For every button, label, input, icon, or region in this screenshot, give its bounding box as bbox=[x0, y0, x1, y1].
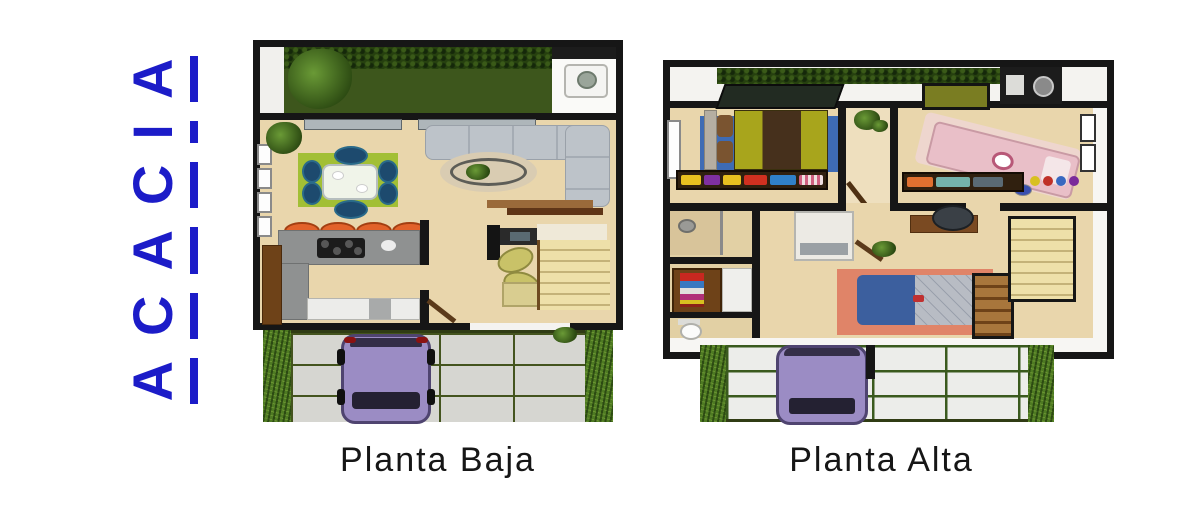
upper-floor-plan bbox=[663, 60, 1100, 422]
plate bbox=[356, 184, 368, 193]
door-opening bbox=[966, 203, 1000, 211]
towel-stack bbox=[680, 273, 704, 307]
bath-wall bbox=[670, 257, 752, 264]
bedroom-1 bbox=[670, 108, 838, 203]
bed-pattern bbox=[990, 150, 1016, 173]
interior-wall bbox=[752, 211, 760, 338]
car-rear-window bbox=[350, 338, 422, 347]
stair-landing bbox=[537, 224, 607, 240]
washer-drum bbox=[577, 71, 597, 89]
laundry-nook bbox=[552, 47, 616, 113]
laundry-counter bbox=[552, 47, 616, 59]
lawn-strip-left bbox=[263, 330, 291, 422]
brand-acacia-vertical-text: A C A C I A bbox=[125, 50, 235, 410]
sofa-corner-section bbox=[565, 125, 610, 207]
wall-frame bbox=[1080, 114, 1096, 142]
car-taillight bbox=[344, 337, 356, 343]
car-roof-view bbox=[776, 345, 868, 425]
dining-chair bbox=[302, 182, 322, 205]
plate bbox=[332, 171, 344, 180]
washing-machine bbox=[564, 64, 608, 98]
window bbox=[257, 168, 272, 189]
car-wheel bbox=[427, 349, 435, 365]
bench-seat bbox=[502, 282, 539, 307]
lawn-strip-right bbox=[1028, 345, 1054, 422]
car-wheel bbox=[337, 389, 345, 405]
toilet bbox=[680, 323, 702, 340]
driveway-pavement bbox=[726, 345, 1028, 422]
terrace-hedge bbox=[717, 68, 1000, 84]
vanity-cabinet bbox=[794, 211, 854, 261]
living-round-rug bbox=[440, 152, 537, 192]
tv-console-front bbox=[507, 208, 603, 215]
burner bbox=[321, 240, 329, 248]
lawn-strip-left bbox=[700, 345, 726, 422]
dining-chair bbox=[302, 160, 322, 183]
desk-chair bbox=[932, 205, 974, 231]
bed-cover bbox=[734, 110, 828, 170]
cabinet-front bbox=[800, 243, 848, 255]
shower-drain bbox=[678, 219, 696, 233]
car bbox=[341, 334, 431, 424]
hallway bbox=[846, 108, 890, 203]
car-taillight bbox=[416, 337, 428, 343]
sliding-glass-door bbox=[304, 119, 402, 130]
headboard bbox=[704, 110, 717, 170]
window bbox=[257, 192, 272, 213]
dining-chair bbox=[334, 200, 368, 219]
interior-wall bbox=[420, 290, 429, 323]
burner bbox=[354, 247, 362, 255]
car-windshield bbox=[352, 392, 420, 409]
car-windshield bbox=[789, 398, 855, 414]
bed-blanket bbox=[857, 275, 921, 325]
staircase bbox=[537, 240, 610, 310]
bed-sheet bbox=[915, 275, 977, 325]
dresser-item bbox=[936, 177, 970, 187]
wall-segment bbox=[866, 345, 875, 379]
tv-console-top bbox=[487, 200, 593, 208]
car-wheel bbox=[427, 389, 435, 405]
towel-cabinet bbox=[672, 268, 722, 314]
utility-closet bbox=[1000, 67, 1062, 104]
brand-letter: A bbox=[125, 227, 198, 273]
toy-shelf bbox=[676, 170, 828, 190]
car-rear-window bbox=[784, 348, 860, 356]
shower bbox=[670, 211, 723, 255]
toy bbox=[681, 175, 701, 185]
study-cabinet bbox=[487, 225, 500, 260]
kitchen-lower-cabinets bbox=[307, 298, 420, 320]
driveway bbox=[263, 330, 613, 422]
dining-chair bbox=[334, 146, 368, 165]
fridge-cabinet bbox=[262, 245, 282, 325]
toy bbox=[770, 175, 796, 185]
burner bbox=[345, 240, 353, 248]
kitchen-counter bbox=[278, 230, 420, 265]
pillow bbox=[717, 141, 733, 163]
interior-wall bbox=[838, 108, 846, 211]
toy-ball bbox=[1030, 176, 1040, 186]
corner-plant bbox=[266, 122, 302, 154]
dining-table bbox=[322, 164, 378, 200]
bath-wall bbox=[670, 312, 752, 318]
porch-bush bbox=[553, 327, 577, 343]
bedroom-3 bbox=[760, 211, 1093, 338]
ground-floor-plan bbox=[253, 40, 623, 422]
entry-door-leaf bbox=[426, 299, 456, 324]
pillow bbox=[717, 115, 733, 137]
balcony-glass-panel bbox=[715, 84, 844, 109]
backyard-patio bbox=[260, 47, 286, 113]
car-wheel bbox=[337, 349, 345, 365]
brand-letter: I bbox=[125, 121, 198, 143]
brand-letter: C bbox=[125, 293, 198, 339]
brand-letter: A bbox=[125, 56, 198, 102]
kitchen-sink-bowl bbox=[381, 240, 396, 251]
bedroom-2 bbox=[898, 108, 1093, 203]
driveway-below bbox=[693, 345, 1058, 422]
interior-wall bbox=[890, 108, 898, 211]
ground-floor-caption: Planta Baja bbox=[253, 441, 623, 477]
window bbox=[257, 216, 272, 237]
desk-monitor bbox=[510, 232, 530, 241]
burner bbox=[333, 247, 341, 255]
brand-letter: A bbox=[125, 358, 198, 404]
toy bbox=[704, 175, 720, 185]
toy bbox=[799, 175, 823, 185]
ground-floor-walls bbox=[253, 40, 623, 330]
driveway-pavement bbox=[291, 330, 585, 422]
kitchen-counter-side bbox=[278, 263, 309, 320]
toy-ball bbox=[1056, 176, 1066, 186]
dresser-item bbox=[907, 177, 933, 187]
room-plant bbox=[872, 241, 896, 257]
brand-letter: C bbox=[125, 162, 198, 208]
upper-floor-caption: Planta Alta bbox=[663, 441, 1100, 477]
dining-chair bbox=[378, 160, 398, 183]
staircase bbox=[1008, 216, 1076, 302]
dresser-item bbox=[973, 177, 1003, 187]
toy bbox=[744, 175, 768, 185]
toy-ball bbox=[1069, 176, 1079, 186]
bedroom3-bed bbox=[857, 275, 983, 325]
stove bbox=[317, 238, 365, 258]
utility-shelf bbox=[1006, 75, 1024, 95]
bath-vanity bbox=[722, 268, 752, 312]
bathroom bbox=[670, 211, 752, 338]
washer-drum bbox=[1033, 76, 1054, 97]
dresser bbox=[902, 172, 1024, 192]
bedroom1-bed bbox=[704, 110, 828, 168]
red-pillow bbox=[913, 295, 924, 302]
upper-floor-walls bbox=[663, 60, 1114, 359]
toy bbox=[723, 175, 741, 185]
dining-chair bbox=[378, 182, 398, 205]
toy-ball bbox=[1043, 176, 1053, 186]
living-dining-area bbox=[260, 120, 616, 323]
wall-frame bbox=[1080, 144, 1096, 172]
skylight-panel bbox=[922, 83, 990, 110]
interior-wall bbox=[420, 220, 429, 265]
hall-plant bbox=[872, 120, 888, 132]
hall-opening bbox=[846, 203, 890, 211]
lawn-strip-right bbox=[585, 330, 613, 422]
